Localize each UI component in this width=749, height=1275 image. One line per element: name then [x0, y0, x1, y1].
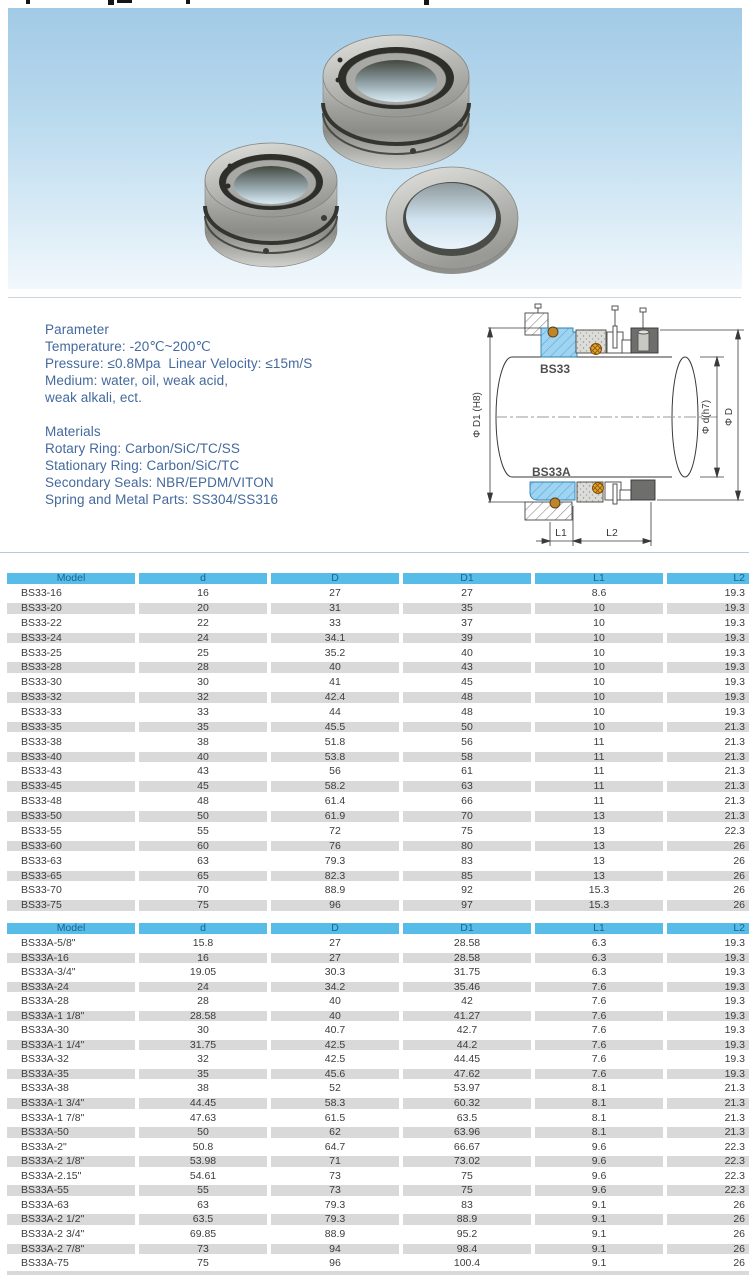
table-cell: 75: [403, 1185, 531, 1196]
table-cell: 64.7: [271, 1142, 399, 1153]
table-cell: 88.9: [271, 885, 399, 896]
table-cell: 38: [139, 737, 267, 748]
column-header: L1: [535, 573, 663, 584]
table-cell: 9.6: [535, 1185, 663, 1196]
table-cell: 16: [139, 953, 267, 964]
table-cell: 42.5: [271, 1054, 399, 1065]
table-cell: 10: [535, 662, 663, 673]
spec-text-line: Secondary Seals: NBR/EPDM/VITON: [45, 474, 312, 491]
table-cell: 82.3: [271, 871, 399, 882]
table-cell: BS33A-16: [7, 953, 135, 964]
table-row: BS33-252535.2401019.3: [7, 645, 749, 660]
parameter-lines: Temperature: -20℃~200℃Pressure: ≤0.8Mpa …: [45, 338, 312, 406]
seal-cross-section-diagram: BS33 BS33A: [450, 298, 749, 552]
table-cell: 9.1: [535, 1200, 663, 1211]
product-photo: [8, 8, 742, 289]
table-cell: 73: [139, 1244, 267, 1255]
table-cell: 83: [403, 1200, 531, 1211]
table-row: BS33-454558.2631121.3: [7, 779, 749, 794]
spec-text-line: Rotary Ring: Carbon/SiC/TC/SS: [45, 440, 312, 457]
table-cell: 55: [139, 826, 267, 837]
table-cell: 19.3: [667, 692, 749, 703]
table-cell: BS33-20: [7, 603, 135, 614]
table-cell: 19.3: [667, 677, 749, 688]
table-row: BS33-434356611121.3: [7, 764, 749, 779]
table-cell: 15.3: [535, 885, 663, 896]
table-cell: 94: [271, 1244, 399, 1255]
table-cell: 13: [535, 811, 663, 822]
column-header: D: [271, 573, 399, 584]
table-cell: 79.3: [271, 1214, 399, 1225]
table-cell: 42.4: [271, 692, 399, 703]
table-cell: 6.3: [535, 953, 663, 964]
table-cell: 21.3: [667, 796, 749, 807]
table-row: BS33-242434.1391019.3: [7, 631, 749, 646]
table-cell: 47.63: [139, 1113, 267, 1124]
table-row: BS33-383851.8561121.3: [7, 735, 749, 750]
table-row: BS33-555572751322.3: [7, 824, 749, 839]
table-cell: 21.3: [667, 1098, 749, 1109]
table-cell: BS33A-2 1/2": [7, 1214, 135, 1225]
table-header-row: ModeldDD1L1L2: [7, 571, 749, 586]
table-cell: 63: [139, 1200, 267, 1211]
table-cell: 28.58: [139, 1011, 267, 1022]
table-cell: 30: [139, 1025, 267, 1036]
table-cell: 13: [535, 871, 663, 882]
table-cell: BS33A-2": [7, 1142, 135, 1153]
table-cell: 19.3: [667, 967, 749, 978]
table-cell: 45.6: [271, 1069, 399, 1080]
table-cell: 34.2: [271, 982, 399, 993]
spec-text-line: Temperature: -20℃~200℃: [45, 338, 312, 355]
table-cell: 48: [403, 692, 531, 703]
table-cell: BS33A-24: [7, 982, 135, 993]
table-cell: 26: [667, 1214, 749, 1225]
table-cell: 7.6: [535, 1040, 663, 1051]
table-cell: 79.3: [271, 856, 399, 867]
table-cell: 15.8: [139, 938, 267, 949]
table-cell: 10: [535, 692, 663, 703]
table-cell: 66: [403, 796, 531, 807]
column-header: Model: [7, 573, 135, 584]
table-cell: 31.75: [139, 1040, 267, 1051]
table-cell: 35.46: [403, 982, 531, 993]
table-row: BS33-606076801326: [7, 839, 749, 854]
table-row: BS33-636379.3831326: [7, 853, 749, 868]
table-row: BS33-353545.5501021.3: [7, 720, 749, 735]
table-cell: 54.61: [139, 1171, 267, 1182]
table-row: BS33A-242434.235.467.619.3: [7, 980, 749, 995]
table-cell: 19.3: [667, 603, 749, 614]
table-cell: 53.8: [271, 752, 399, 763]
table-cell: 48: [403, 707, 531, 718]
table-cell: 9.6: [535, 1142, 663, 1153]
seal-assembly-large: [323, 35, 469, 169]
table-cell: 53.97: [403, 1083, 531, 1094]
table-cell: 61: [403, 766, 531, 777]
table-cell: 27: [271, 938, 399, 949]
table-cell: BS33A-32: [7, 1054, 135, 1065]
table-row: BS33-323242.4481019.3: [7, 690, 749, 705]
table-cell: 61.4: [271, 796, 399, 807]
table-row: BS33A-5/8"15.82728.586.319.3: [7, 936, 749, 951]
table-cell: BS33A-30: [7, 1025, 135, 1036]
table-cell: 75: [403, 826, 531, 837]
dim-outer-label: Φ D: [724, 408, 735, 426]
table-cell: 55: [139, 1185, 267, 1196]
table-cell: 21.3: [667, 722, 749, 733]
dim-l2-label: L2: [606, 527, 618, 539]
table-row: BS33A-2 3/4"69.8588.995.29.126: [7, 1227, 749, 1242]
table-cell: BS33-50: [7, 811, 135, 822]
table-cell: 97: [403, 900, 531, 911]
table-cell: 10: [535, 603, 663, 614]
column-header: D1: [403, 573, 531, 584]
table-cell: 40: [271, 996, 399, 1007]
table-cell: 10: [535, 722, 663, 733]
table-cell: 66.67: [403, 1142, 531, 1153]
table-cell: 16: [139, 588, 267, 599]
table-row: BS33A-2.15"54.6173759.622.3: [7, 1169, 749, 1184]
table-cell: 10: [535, 707, 663, 718]
table-cell: 8.1: [535, 1098, 663, 1109]
table-cell: 33: [139, 707, 267, 718]
table-cell: 11: [535, 752, 663, 763]
table-row: BS33-404053.8581121.3: [7, 749, 749, 764]
table-row: BS33A-1 1/4"31.7542.544.27.619.3: [7, 1038, 749, 1053]
table-cell: BS33A-1 7/8": [7, 1113, 135, 1124]
spec-text-line: weak alkali, ect.: [45, 389, 312, 406]
table-cell: BS33-32: [7, 692, 135, 703]
table-cell: 26: [667, 1244, 749, 1255]
table-cell: 19.3: [667, 982, 749, 993]
table-row: BS33A-282840427.619.3: [7, 994, 749, 1009]
table-row: BS33A-2 7/8"739498.49.126: [7, 1241, 749, 1256]
table-cell: 37: [403, 618, 531, 629]
top-model-label: BS33: [540, 362, 570, 376]
table-cell: 44.45: [139, 1098, 267, 1109]
materials-lines: Rotary Ring: Carbon/SiC/TC/SSStationary …: [45, 440, 312, 508]
spec-text-line: Spring and Metal Parts: SS304/SS316: [45, 491, 312, 508]
table-row: BS33-7575969715.326: [7, 898, 749, 913]
table-cell: 52: [271, 1083, 399, 1094]
table-cell: 61.9: [271, 811, 399, 822]
table-cell: 26: [667, 1229, 749, 1240]
table-cell: BS33A-2 7/8": [7, 1244, 135, 1255]
table-cell: 21.3: [667, 752, 749, 763]
table-row: BS33-282840431019.3: [7, 660, 749, 675]
table-cell: 42: [403, 996, 531, 1007]
table-cell: 19.3: [667, 633, 749, 644]
table-cell: 19.3: [667, 707, 749, 718]
table-cell: BS33A-35: [7, 1069, 135, 1080]
table-cell: 22.3: [667, 826, 749, 837]
table-cell: BS33A-63: [7, 1200, 135, 1211]
table-cell: 63.5: [139, 1214, 267, 1225]
table-cell: 75: [139, 900, 267, 911]
table-cell: BS33-22: [7, 618, 135, 629]
table-cell: 9.1: [535, 1258, 663, 1269]
table-cell: BS33A-1 1/8": [7, 1011, 135, 1022]
table-cell: BS33A-38: [7, 1083, 135, 1094]
table-cell: 44.2: [403, 1040, 531, 1051]
table-cell: BS33A-1 3/4": [7, 1098, 135, 1109]
table-cell: 50: [139, 1127, 267, 1138]
table-cell: 80: [403, 841, 531, 852]
table-cell: 60.32: [403, 1098, 531, 1109]
table-cell: 71: [271, 1156, 399, 1167]
table-cell: 96: [271, 1258, 399, 1269]
table-cell: 100.4: [403, 1258, 531, 1269]
table-cell: 34.1: [271, 633, 399, 644]
table-cell: 9.1: [535, 1244, 663, 1255]
table-cell: BS33-48: [7, 796, 135, 807]
table-cell: 19.3: [667, 1054, 749, 1065]
table-cell: 40: [139, 752, 267, 763]
table-cell: 11: [535, 796, 663, 807]
table-cell: 35.2: [271, 648, 399, 659]
table-cell: BS33-65: [7, 871, 135, 882]
table-cell: 19.3: [667, 953, 749, 964]
table-cell: 88.9: [403, 1214, 531, 1225]
table-cell: 28.58: [403, 938, 531, 949]
table-cell: 35: [403, 603, 531, 614]
table-row: BS33A-323242.544.457.619.3: [7, 1052, 749, 1067]
table-cell: BS33-25: [7, 648, 135, 659]
table-row: BS33-707088.99215.326: [7, 883, 749, 898]
table-cell: BS33-60: [7, 841, 135, 852]
table-cell: 48: [139, 796, 267, 807]
table-row: BS33A-636379.3839.126: [7, 1198, 749, 1213]
table-cell: 53.98: [139, 1156, 267, 1167]
table-cell: 92: [403, 885, 531, 896]
table-cell: BS33A-2.15": [7, 1171, 135, 1182]
table-cell: 13: [535, 826, 663, 837]
table-cell: BS33A-2 3/4": [7, 1229, 135, 1240]
table-cell: 35: [139, 722, 267, 733]
table-cell: 26: [667, 1200, 749, 1211]
table-cell: 32: [139, 692, 267, 703]
column-header: L2: [667, 923, 749, 934]
table-row: BS33A-2"50.864.766.679.622.3: [7, 1140, 749, 1155]
table-cell: 26: [667, 856, 749, 867]
table-cell: BS33A-28: [7, 996, 135, 1007]
table-row: BS33A-353545.647.627.619.3: [7, 1067, 749, 1082]
table-cell: 7.6: [535, 1011, 663, 1022]
table-cell: 63.96: [403, 1127, 531, 1138]
table-row: BS33A-38385253.978.121.3: [7, 1081, 749, 1096]
table-row: BS33A-303040.742.77.619.3: [7, 1023, 749, 1038]
table-cell: 40: [271, 1011, 399, 1022]
table-cell: 19.05: [139, 967, 267, 978]
table-cell: BS33-55: [7, 826, 135, 837]
table-row: BS33A-1 7/8"47.6361.563.58.121.3: [7, 1111, 749, 1126]
table-cell: 50: [403, 722, 531, 733]
table-cell: 35: [139, 1069, 267, 1080]
seal-ring-thin: [386, 167, 518, 274]
table-row: BS33A-555573759.622.3: [7, 1183, 749, 1198]
table-cell: 21.3: [667, 766, 749, 777]
column-header: D1: [403, 923, 531, 934]
table-row: BS33A-16162728.586.319.3: [7, 951, 749, 966]
table-cell: 9.6: [535, 1156, 663, 1167]
table-cell: 42.5: [271, 1040, 399, 1051]
table-cell: 28: [139, 996, 267, 1007]
table-cell: BS33-35: [7, 722, 135, 733]
table-cell: BS33-16: [7, 588, 135, 599]
table-cell: 8.1: [535, 1113, 663, 1124]
table-cell: 7.6: [535, 1069, 663, 1080]
dim-l1-label: L1: [555, 527, 567, 539]
table-cell: 79.3: [271, 1200, 399, 1211]
column-header: L2: [667, 573, 749, 584]
table-header-row: ModeldDD1L1L2: [7, 921, 749, 936]
table-cell: 10: [535, 633, 663, 644]
table-cell: BS33-28: [7, 662, 135, 673]
table-cell: 41.27: [403, 1011, 531, 1022]
table-cell: 24: [139, 633, 267, 644]
table-cell: 41: [271, 677, 399, 688]
table-cell: 7.6: [535, 1025, 663, 1036]
table-cell: BS33-38: [7, 737, 135, 748]
table-cell: 45: [403, 677, 531, 688]
table-cell: 85: [403, 871, 531, 882]
table-cell: 19.3: [667, 938, 749, 949]
table-row: BS33A-3/4"19.0530.331.756.319.3: [7, 965, 749, 980]
table-cell: BS33-24: [7, 633, 135, 644]
table-cell: 19.3: [667, 1011, 749, 1022]
table-cell: 42.7: [403, 1025, 531, 1036]
table-cell: 70: [139, 885, 267, 896]
table-cell: 10: [535, 618, 663, 629]
seal-assembly-medium: [205, 143, 337, 267]
table-cell: 43: [139, 766, 267, 777]
table-cell: 44.45: [403, 1054, 531, 1065]
clipped-table-row: [7, 1271, 749, 1275]
table-cell: 19.3: [667, 1040, 749, 1051]
spec-text-line: Stationary Ring: Carbon/SiC/TC: [45, 457, 312, 474]
bs33a-dimension-table: ModeldDD1L1L2BS33A-5/8"15.82728.586.319.…: [7, 921, 749, 1271]
table-cell: 40: [271, 662, 399, 673]
table-cell: 21.3: [667, 1113, 749, 1124]
table-cell: 56: [271, 766, 399, 777]
table-row: BS33A-1 1/8"28.584041.277.619.3: [7, 1009, 749, 1024]
table-cell: 73: [271, 1171, 399, 1182]
table-cell: 25: [139, 648, 267, 659]
table-cell: 39: [403, 633, 531, 644]
table-cell: 11: [535, 766, 663, 777]
table-cell: 26: [667, 885, 749, 896]
table-cell: BS33A-55: [7, 1185, 135, 1196]
spec-text-line: Pressure: ≤0.8Mpa Linear Velocity: ≤15m/…: [45, 355, 312, 372]
table-cell: 7.6: [535, 1054, 663, 1065]
table-cell: 72: [271, 826, 399, 837]
table-cell: 45: [139, 781, 267, 792]
table-cell: 22: [139, 618, 267, 629]
table-row: BS33A-2 1/8"53.987173.029.622.3: [7, 1154, 749, 1169]
table-cell: 60: [139, 841, 267, 852]
table-cell: 30.3: [271, 967, 399, 978]
table-cell: 62: [271, 1127, 399, 1138]
table-row: BS33-303041451019.3: [7, 675, 749, 690]
table-cell: 96: [271, 900, 399, 911]
table-cell: 21.3: [667, 1127, 749, 1138]
column-header: d: [139, 573, 267, 584]
table-cell: 58.3: [271, 1098, 399, 1109]
table-cell: 8.6: [535, 588, 663, 599]
table-cell: 13: [535, 841, 663, 852]
table-cell: 70: [403, 811, 531, 822]
table-cell: BS33-75: [7, 900, 135, 911]
column-header: Model: [7, 923, 135, 934]
table-cell: 27: [271, 588, 399, 599]
table-cell: 65: [139, 871, 267, 882]
table-cell: 19.3: [667, 996, 749, 1007]
table-cell: 63: [403, 781, 531, 792]
table-row: BS33-202031351019.3: [7, 601, 749, 616]
bottom-seal-assembly: [525, 480, 655, 520]
table-cell: 30: [139, 677, 267, 688]
table-cell: 19.3: [667, 648, 749, 659]
table-cell: 31: [271, 603, 399, 614]
table-cell: 19.3: [667, 618, 749, 629]
table-cell: BS33A-3/4": [7, 967, 135, 978]
table-cell: 21.3: [667, 811, 749, 822]
table-cell: 6.3: [535, 938, 663, 949]
table-cell: 19.3: [667, 1069, 749, 1080]
table-cell: 56: [403, 737, 531, 748]
table-cell: BS33-40: [7, 752, 135, 763]
table-cell: 19.3: [667, 1025, 749, 1036]
table-cell: 20: [139, 603, 267, 614]
table-cell: 7.6: [535, 982, 663, 993]
table-cell: 98.4: [403, 1244, 531, 1255]
table-cell: 73: [271, 1185, 399, 1196]
table-cell: 40: [403, 648, 531, 659]
table-cell: 10: [535, 648, 663, 659]
table-cell: 26: [667, 871, 749, 882]
table-cell: BS33-45: [7, 781, 135, 792]
table-cell: 9.6: [535, 1171, 663, 1182]
table-cell: 44: [271, 707, 399, 718]
spec-text-block: Parameter Temperature: -20℃~200℃Pressure…: [45, 321, 312, 508]
column-header: D: [271, 923, 399, 934]
table-cell: 40.7: [271, 1025, 399, 1036]
table-cell: 38: [139, 1083, 267, 1094]
table-cell: BS33A-2 1/8": [7, 1156, 135, 1167]
table-cell: 8.1: [535, 1127, 663, 1138]
table-cell: 73.02: [403, 1156, 531, 1167]
table-cell: BS33-43: [7, 766, 135, 777]
table-cell: BS33A-1 1/4": [7, 1040, 135, 1051]
table-cell: 27: [403, 588, 531, 599]
table-cell: 50: [139, 811, 267, 822]
top-seal-assembly: [525, 304, 658, 357]
table-row: BS33-161627278.619.3: [7, 586, 749, 601]
table-cell: 83: [403, 856, 531, 867]
table-cell: 75: [139, 1258, 267, 1269]
bs33-dimension-table: ModeldDD1L1L2BS33-161627278.619.3BS33-20…: [7, 571, 749, 913]
table-cell: 58.2: [271, 781, 399, 792]
table-cell: 75: [403, 1171, 531, 1182]
table-cell: 58: [403, 752, 531, 763]
table-cell: 8.1: [535, 1083, 663, 1094]
dim-bore-label: Φ D1 (H8): [472, 392, 483, 438]
materials-title: Materials: [45, 423, 312, 440]
table-cell: 28.58: [403, 953, 531, 964]
table-cell: 26: [667, 1258, 749, 1269]
table-section-divider: [0, 552, 749, 553]
